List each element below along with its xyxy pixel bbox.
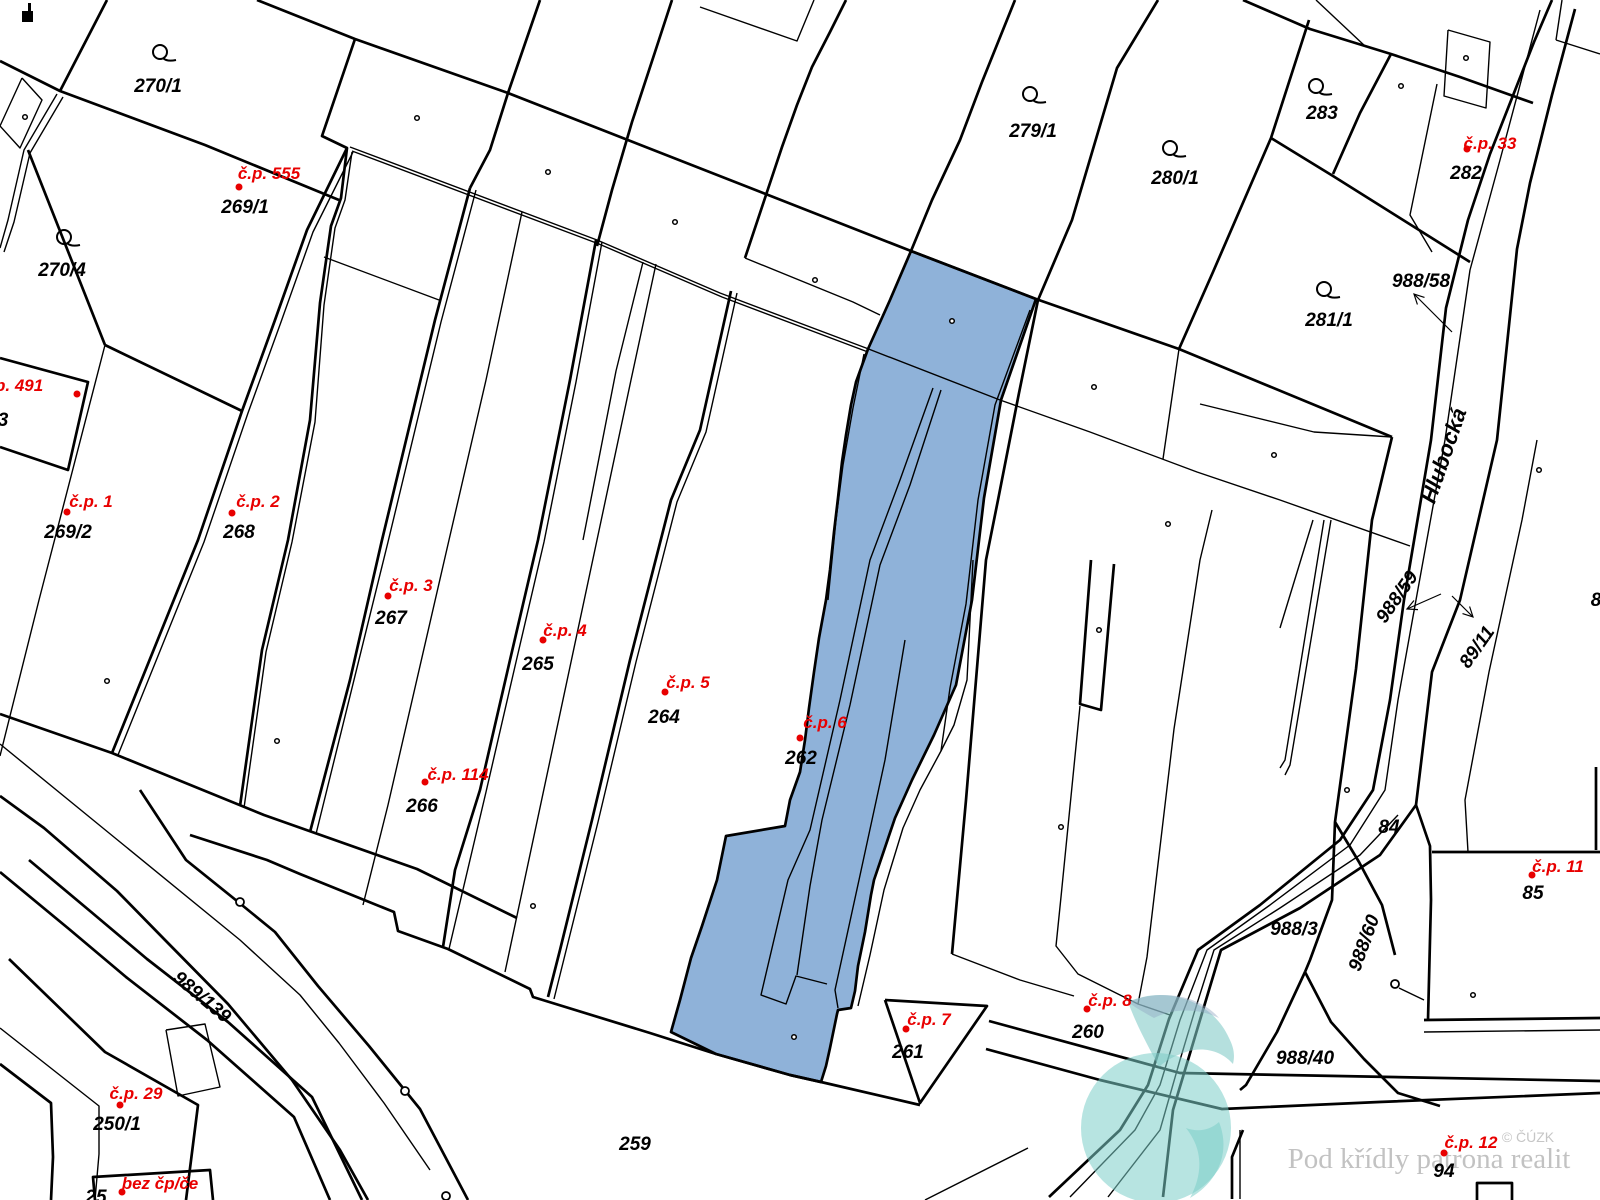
svg-text:č.p. 33: č.p. 33 <box>1464 134 1517 153</box>
svg-text:270/1: 270/1 <box>133 76 182 97</box>
svg-text:250/1: 250/1 <box>92 1114 141 1135</box>
svg-text:282: 282 <box>1449 163 1482 184</box>
svg-text:č.p. 8: č.p. 8 <box>1088 991 1132 1010</box>
svg-text:94: 94 <box>1433 1161 1455 1182</box>
svg-text:280/1: 280/1 <box>1150 168 1199 189</box>
svg-text:261: 261 <box>891 1042 924 1063</box>
svg-text:č.p. 555: č.p. 555 <box>238 164 301 183</box>
svg-text:č.p. 29: č.p. 29 <box>110 1084 163 1103</box>
svg-text:84: 84 <box>1378 817 1400 838</box>
svg-text:č.p. 2: č.p. 2 <box>236 492 280 511</box>
svg-text:266: 266 <box>405 796 438 817</box>
svg-text:8: 8 <box>1591 590 1600 611</box>
svg-text:© ČÚZK: © ČÚZK <box>1502 1129 1555 1145</box>
svg-text:279/1: 279/1 <box>1008 121 1057 142</box>
svg-text:bez čp/če: bez čp/če <box>122 1174 199 1193</box>
svg-text:988/40: 988/40 <box>1276 1048 1335 1069</box>
svg-text:Pod křídly patrona realit: Pod křídly patrona realit <box>1288 1143 1571 1175</box>
svg-text:č.p. 491: č.p. 491 <box>0 376 43 395</box>
svg-text:264: 264 <box>647 707 680 728</box>
svg-text:č.p. 7: č.p. 7 <box>907 1010 952 1029</box>
svg-text:283: 283 <box>1305 103 1338 124</box>
svg-text:988/3: 988/3 <box>1270 919 1318 940</box>
svg-text:25: 25 <box>84 1187 107 1200</box>
svg-text:262: 262 <box>784 748 817 769</box>
svg-text:267: 267 <box>374 608 408 629</box>
svg-text:č.p. 11: č.p. 11 <box>1532 857 1584 876</box>
svg-text:270/4: 270/4 <box>37 260 86 281</box>
svg-text:č.p. 1: č.p. 1 <box>69 492 112 511</box>
svg-text:č.p. 114: č.p. 114 <box>427 765 489 784</box>
svg-text:281/1: 281/1 <box>1304 310 1353 331</box>
svg-text:260: 260 <box>1071 1022 1104 1043</box>
svg-text:č.p. 3: č.p. 3 <box>389 576 433 595</box>
svg-text:č.p. 5: č.p. 5 <box>666 673 710 692</box>
svg-text:269/2: 269/2 <box>43 522 92 543</box>
svg-text:259: 259 <box>618 1134 651 1155</box>
svg-text:3: 3 <box>0 410 9 431</box>
svg-text:č.p. 6: č.p. 6 <box>803 713 847 732</box>
svg-text:č.p. 4: č.p. 4 <box>543 621 587 640</box>
svg-text:265: 265 <box>521 654 554 675</box>
svg-text:269/1: 269/1 <box>220 197 269 218</box>
svg-text:č.p. 12: č.p. 12 <box>1445 1133 1498 1152</box>
svg-text:268: 268 <box>222 522 255 543</box>
svg-text:988/58: 988/58 <box>1392 271 1451 292</box>
svg-text:85: 85 <box>1522 883 1544 904</box>
